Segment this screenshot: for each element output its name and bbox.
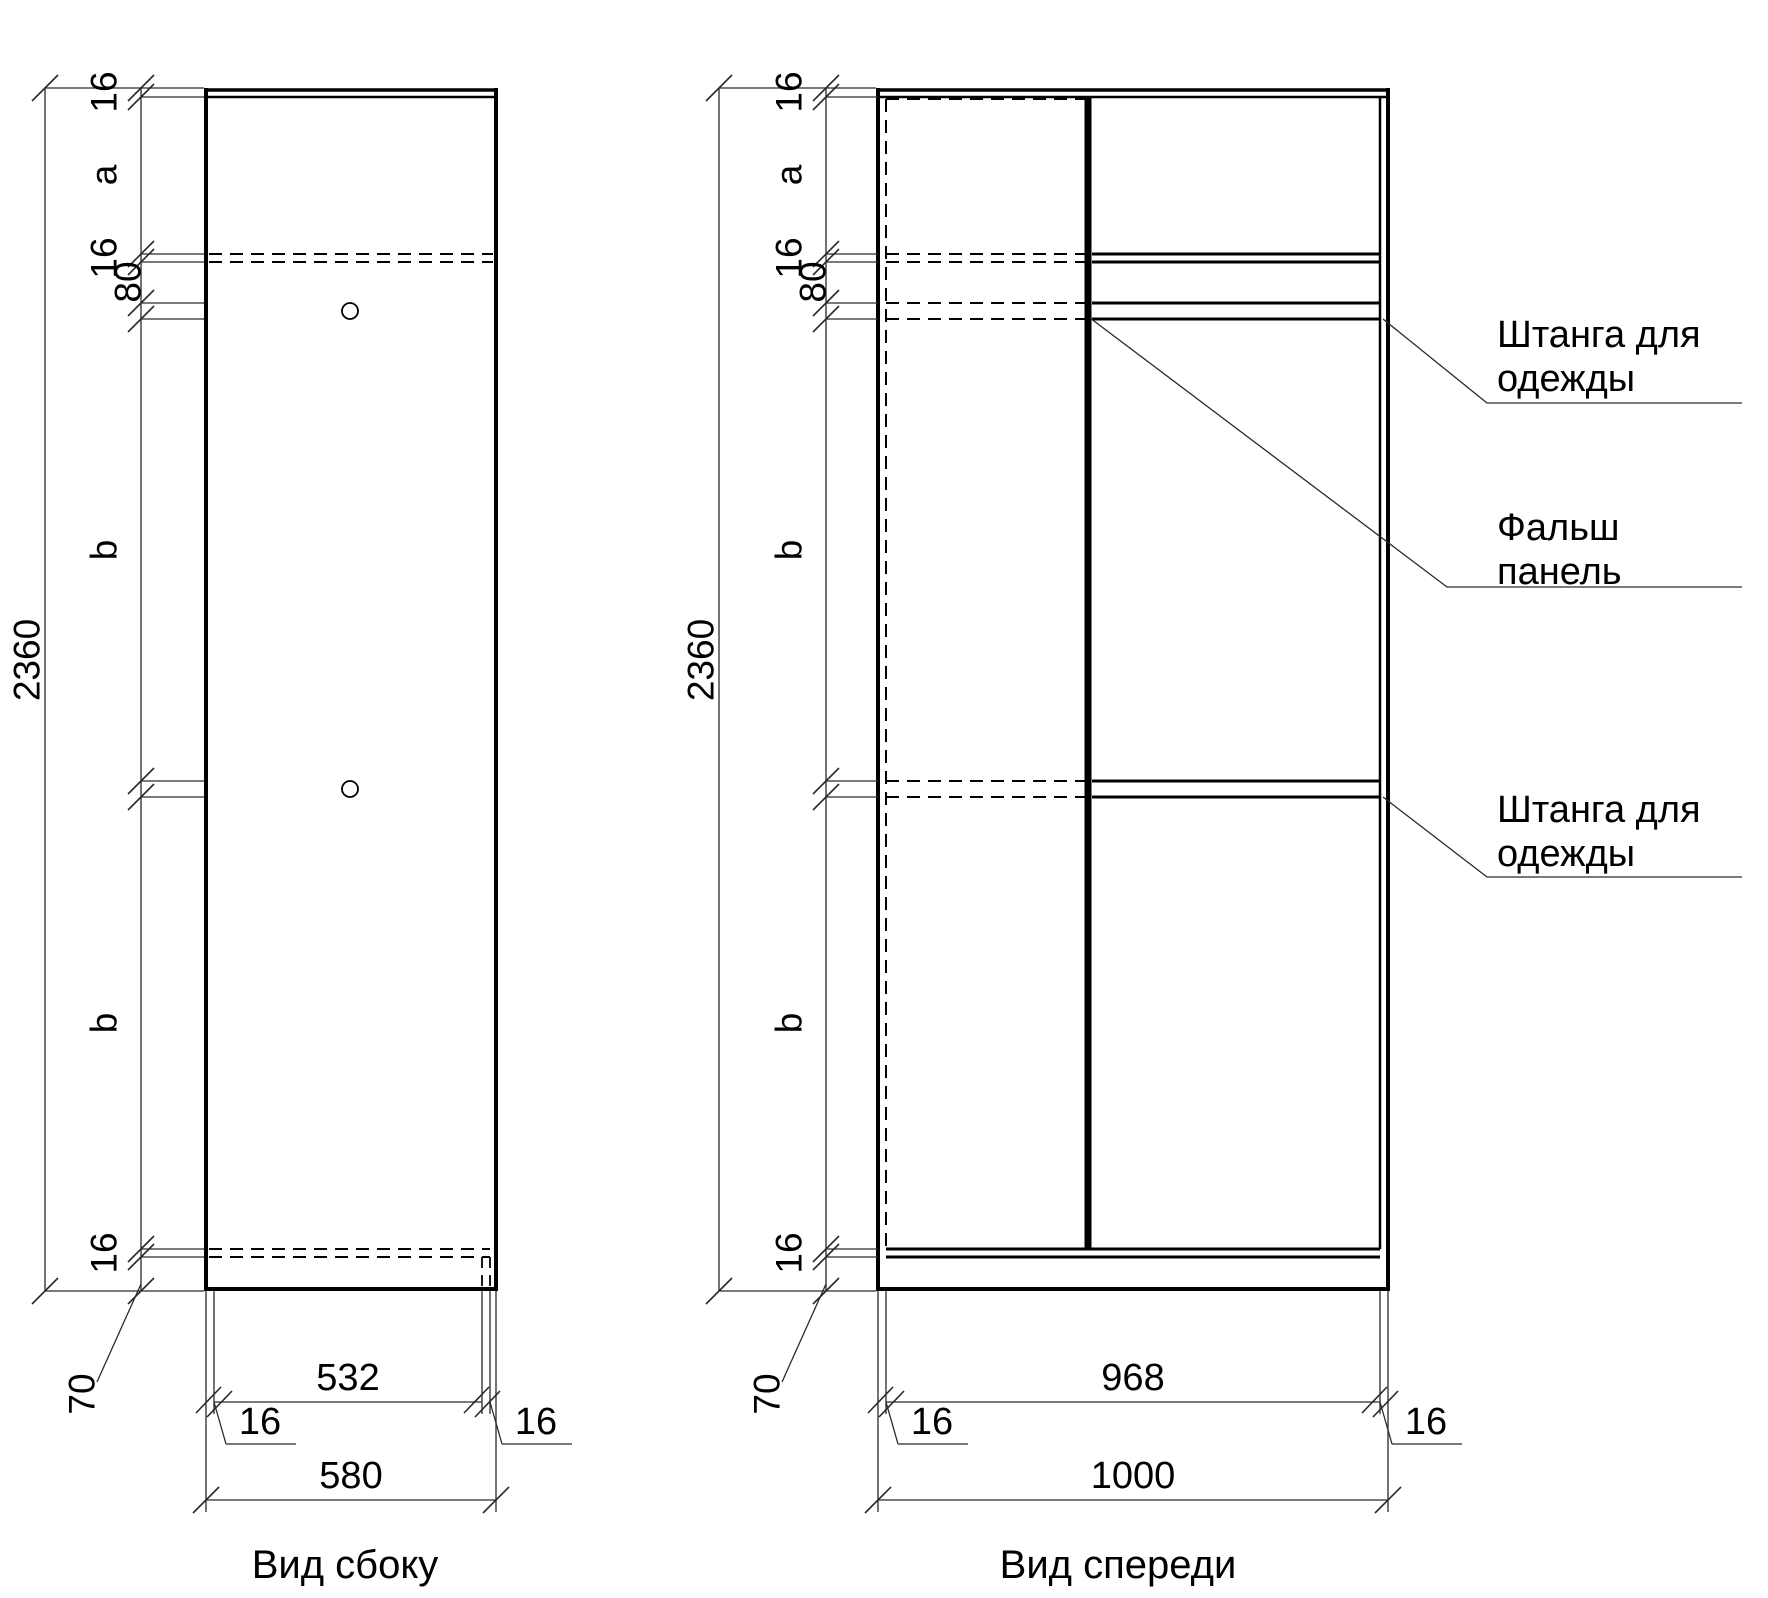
front-height-total: 2360 [681, 619, 722, 701]
side-view-height-dimensions: 2360 16 a 16 80 b b 16 70 [7, 71, 205, 1414]
annotation-rail-top-line1: Штанга для [1497, 314, 1701, 356]
side-dim-bottom16: 16 [84, 1232, 125, 1273]
side-dim-depth-total: 580 [319, 1455, 382, 1497]
side-view-hidden-lines [209, 254, 493, 1287]
front-view-cabinet [876, 88, 1390, 1291]
front-view-hidden-lines [886, 99, 1085, 1247]
side-height-total: 2360 [7, 619, 48, 701]
side-dim-b-upper: b [84, 540, 125, 561]
side-dim-top16: 16 [84, 71, 125, 112]
front-view-height-dimensions: 2360 16 a 16 80 b b 16 70 [681, 71, 879, 1414]
side-dim-inner-depth: 532 [316, 1357, 379, 1399]
front-dim-a: a [769, 164, 810, 185]
front-dim-bottom16: 16 [769, 1232, 810, 1273]
side-dim-b-lower: b [84, 1013, 125, 1034]
annotation-rail-mid-line1: Штанга для [1497, 789, 1701, 831]
side-view-cabinet-outline [204, 88, 498, 1291]
side-view-width-dimensions: 532 16 16 580 [193, 1291, 572, 1513]
annotation-rail-top-line2: одежды [1497, 358, 1635, 400]
front-dim-right16: 16 [1405, 1401, 1447, 1443]
side-view: 2360 16 a 16 80 b b 16 70 532 16 [7, 71, 573, 1587]
front-dim-width-total: 1000 [1091, 1455, 1176, 1497]
side-dim-plinth70: 70 [62, 1373, 103, 1414]
annotation-false-panel-line1: Фальш [1497, 507, 1619, 549]
side-dim-back16: 16 [239, 1401, 281, 1443]
side-dim-a: a [84, 164, 125, 185]
front-dim-rail80: 80 [793, 261, 834, 302]
side-view-caption: Вид сбоку [252, 1543, 439, 1587]
front-view-caption: Вид спереди [1000, 1543, 1237, 1587]
front-dim-inner-width: 968 [1101, 1357, 1164, 1399]
front-dim-b-upper: b [769, 540, 810, 561]
front-dim-plinth70: 70 [747, 1373, 788, 1414]
front-dim-top16: 16 [769, 71, 810, 112]
front-view-width-dimensions: 968 16 16 1000 [865, 1291, 1462, 1513]
plinth-leader [97, 1284, 141, 1382]
furniture-drawing: 2360 16 a 16 80 b b 16 70 532 16 [0, 0, 1768, 1598]
side-dim-front16: 16 [515, 1401, 557, 1443]
annotation-false-panel-line2: панель [1497, 551, 1622, 593]
leader-false-panel [1090, 318, 1742, 587]
clothes-rail-section-upper [342, 303, 358, 319]
front-view-annotations: Штанга для одежды Фальш панель Штанга дл… [1090, 314, 1742, 877]
annotation-rail-mid-line2: одежды [1497, 833, 1635, 875]
clothes-rail-section-middle [342, 781, 358, 797]
side-dim-rail80: 80 [108, 261, 149, 302]
front-dim-b-lower: b [769, 1013, 810, 1034]
front-view: 2360 16 a 16 80 b b 16 70 968 16 16 [681, 71, 1743, 1587]
plinth-leader [782, 1284, 826, 1382]
front-dim-left16: 16 [911, 1401, 953, 1443]
